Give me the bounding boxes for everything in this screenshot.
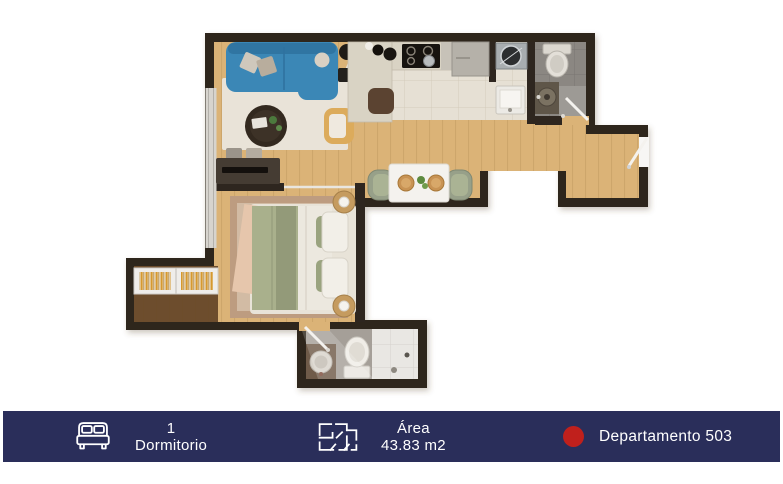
bathroom-bottom-door-gap [299,322,330,331]
unit-badge: Departamento 503 [563,411,732,462]
area-value: 43.83 m2 [381,437,446,454]
area-info: Área 43.83 m2 [315,411,446,462]
closet [134,268,218,294]
vanity-top [535,82,559,114]
washer [496,43,527,69]
dining-table [389,164,449,202]
sofa [226,42,338,100]
area-text: Área 43.83 m2 [381,420,446,454]
fridge [452,42,489,76]
bedrooms-count: 1 [167,420,176,437]
window [206,88,217,248]
bed-icon [73,419,113,455]
kitchen-stove [402,44,440,68]
bedrooms-text: 1 Dormitorio [135,420,207,454]
floor-plan-icon [315,420,361,454]
screenshot-root: 1 Dormitorio Área 43.83 m2 [0,0,783,484]
bedrooms-info: 1 Dormitorio [73,411,207,462]
area-label: Área [397,420,430,437]
bedrooms-label: Dormitorio [135,437,207,454]
red-dot-icon [563,426,584,447]
unit-label: Departamento 503 [599,428,732,446]
bar-stool [368,88,394,114]
info-bar: 1 Dormitorio Área 43.83 m2 [3,411,780,462]
floor-plan [0,0,783,404]
bathroom-top-shower-zone [559,86,586,116]
coffee-table [245,105,287,147]
laundry-sink [496,86,525,114]
floor-plan-svg [0,0,783,404]
